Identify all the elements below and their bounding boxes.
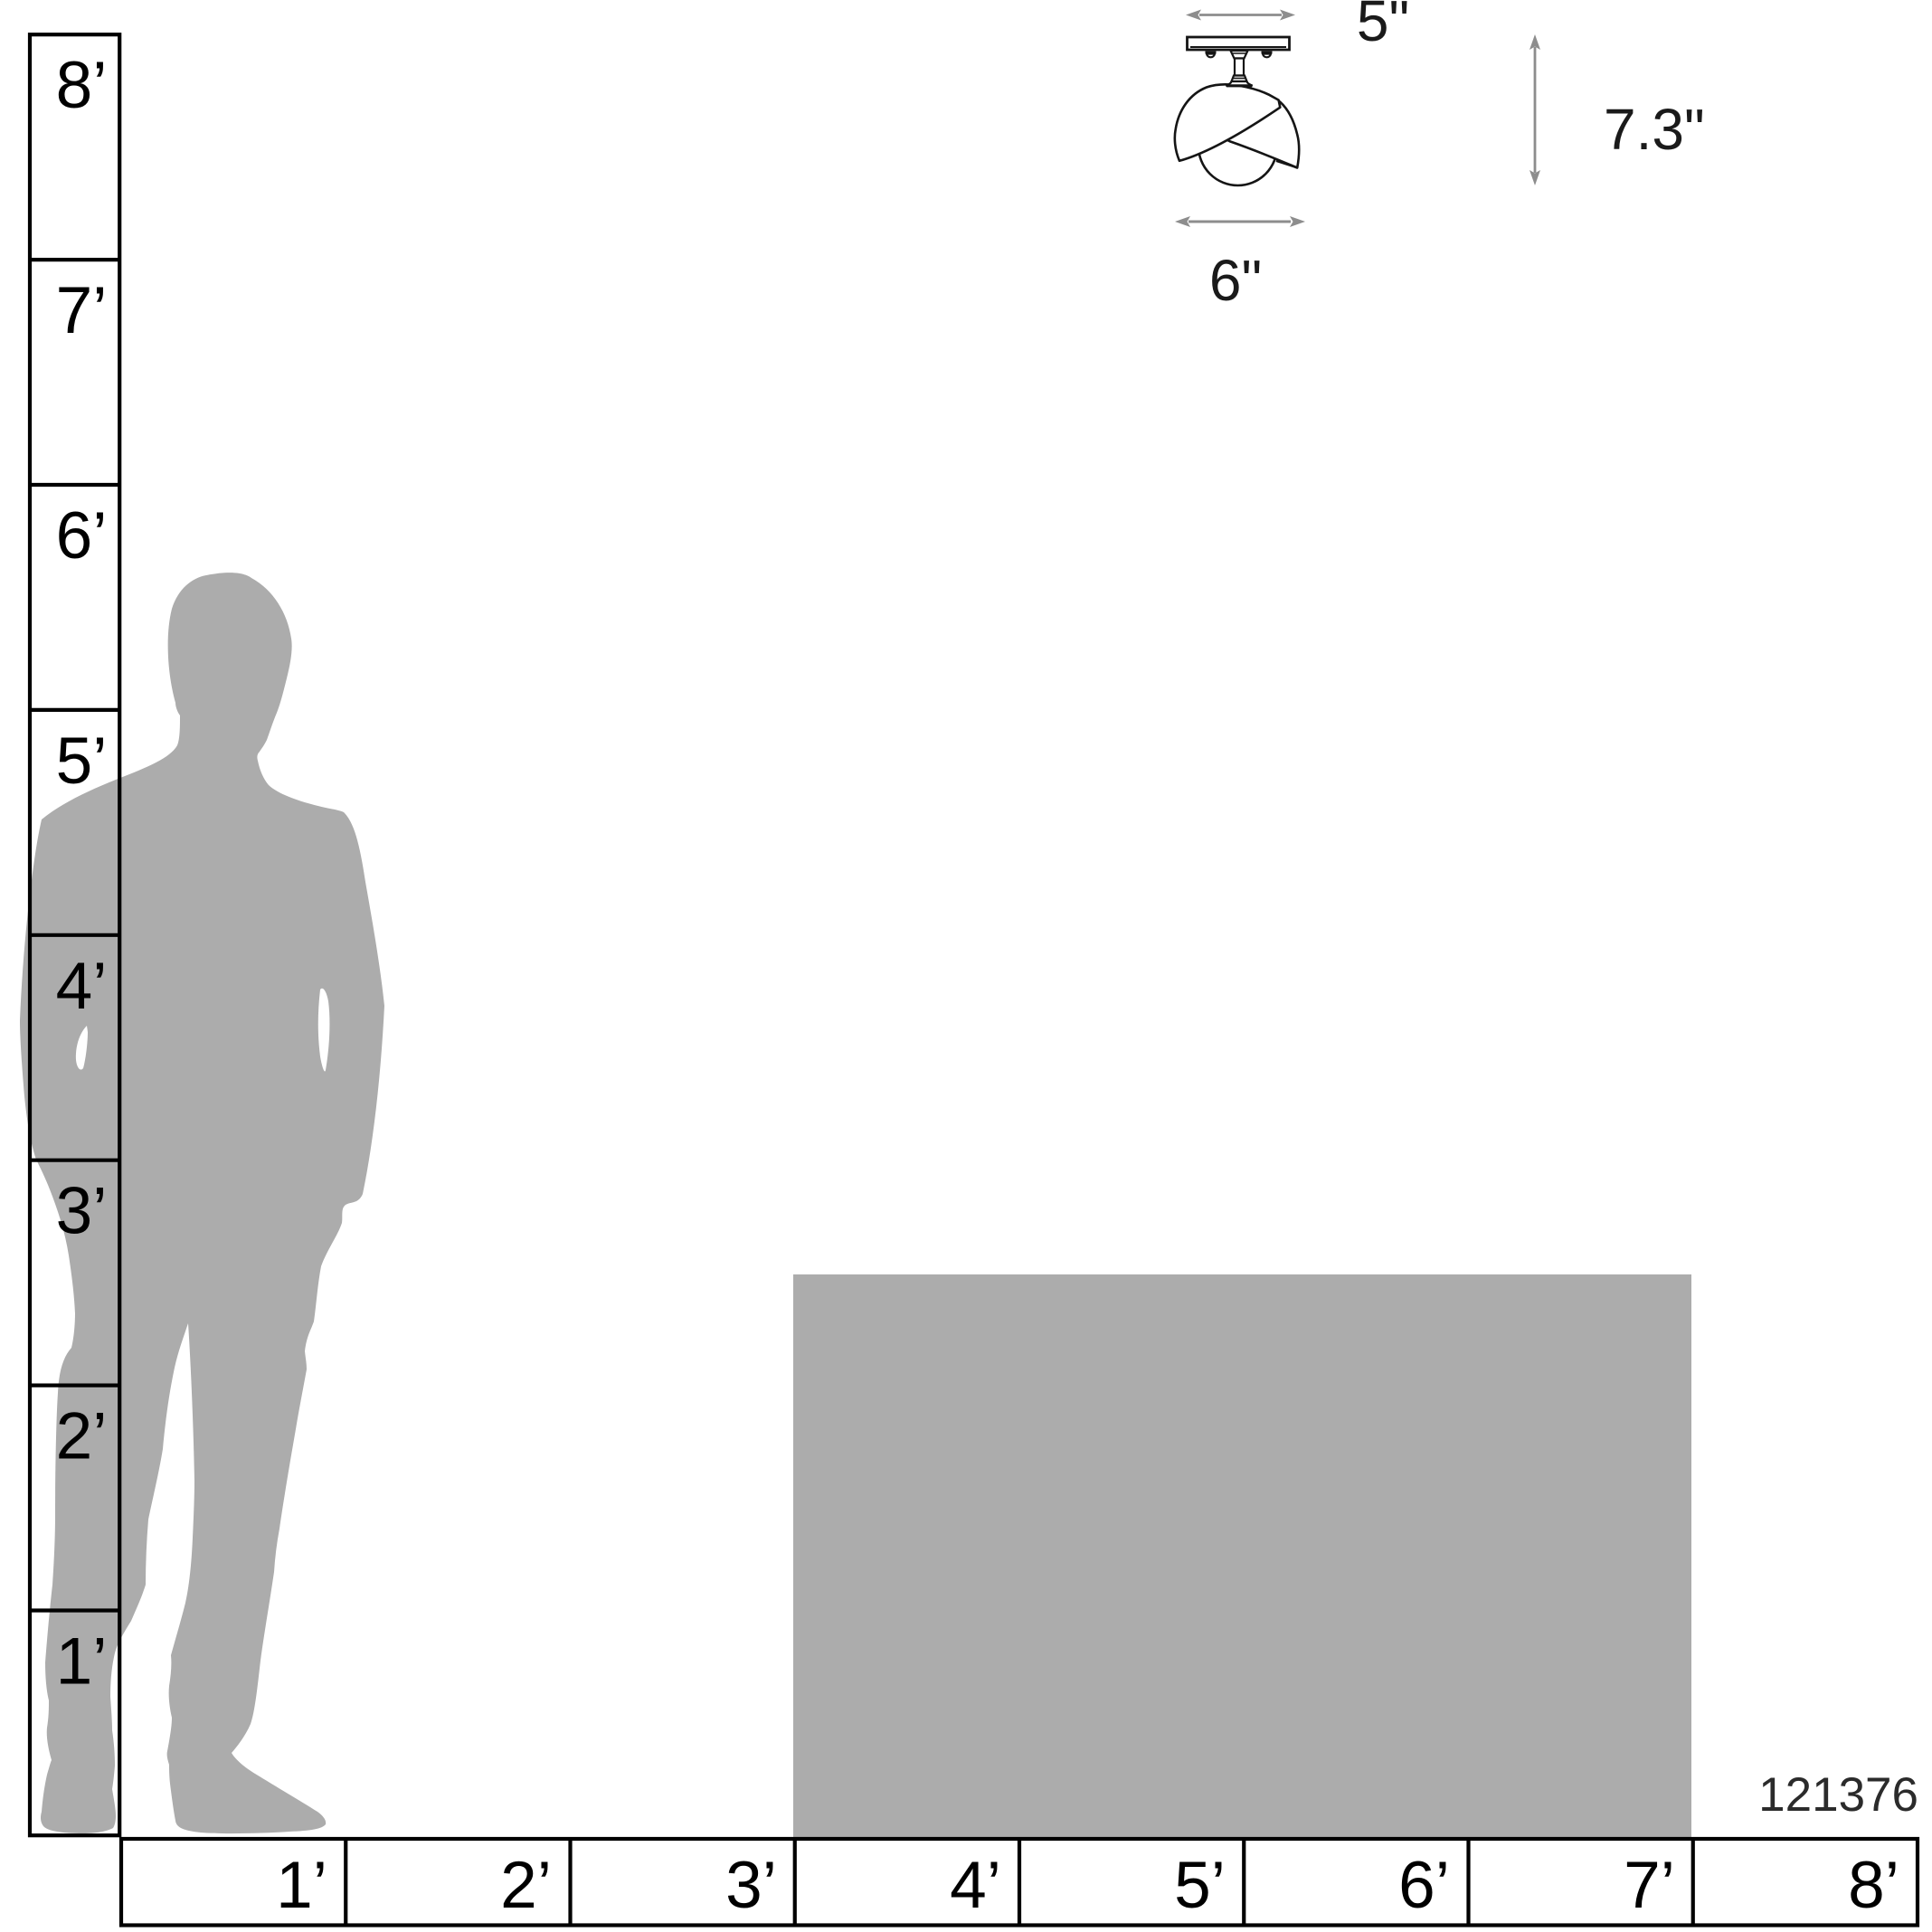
svg-text:3’: 3’	[56, 1175, 108, 1248]
svg-text:6": 6"	[1209, 248, 1262, 313]
svg-text:6’: 6’	[1398, 1849, 1450, 1922]
svg-text:1’: 1’	[56, 1625, 108, 1699]
svg-text:7’: 7’	[56, 274, 108, 347]
svg-text:6’: 6’	[56, 499, 108, 573]
svg-text:3’: 3’	[725, 1849, 777, 1922]
svg-text:4’: 4’	[950, 1849, 1001, 1922]
svg-text:121376: 121376	[1758, 1768, 1918, 1822]
svg-text:1’: 1’	[276, 1849, 327, 1922]
svg-text:5": 5"	[1357, 0, 1409, 53]
svg-text:4’: 4’	[56, 950, 108, 1023]
svg-text:2’: 2’	[500, 1849, 552, 1922]
svg-text:8’: 8’	[56, 49, 108, 122]
svg-text:7’: 7’	[1624, 1849, 1675, 1922]
svg-text:2’: 2’	[56, 1400, 108, 1473]
svg-text:7.3": 7.3"	[1604, 97, 1705, 162]
svg-text:5’: 5’	[56, 724, 108, 798]
svg-text:8’: 8’	[1848, 1849, 1899, 1922]
svg-text:5’: 5’	[1174, 1849, 1226, 1922]
